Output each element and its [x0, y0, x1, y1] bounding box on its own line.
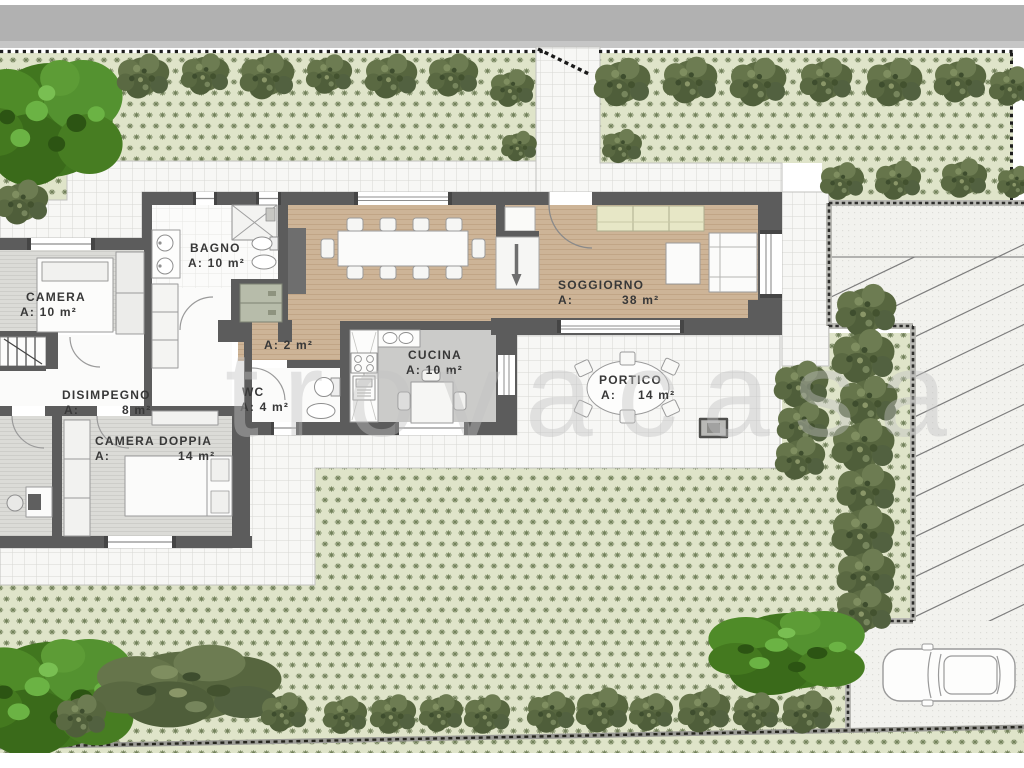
svg-text:A:: A: — [95, 449, 110, 463]
svg-text:SOGGIORNO: SOGGIORNO — [558, 278, 644, 292]
svg-text:A: 10 m²: A: 10 m² — [188, 256, 245, 270]
svg-text:8 m²: 8 m² — [122, 403, 151, 417]
svg-text:DISIMPEGNO: DISIMPEGNO — [62, 388, 151, 402]
svg-text:14 m²: 14 m² — [178, 449, 215, 463]
svg-text:38 m²: 38 m² — [622, 293, 659, 307]
svg-text:BAGNO: BAGNO — [190, 241, 241, 255]
svg-text:A: 10 m²: A: 10 m² — [20, 305, 77, 319]
svg-text:CAMERA DOPPIA: CAMERA DOPPIA — [95, 434, 212, 448]
svg-text:CAMERA: CAMERA — [26, 290, 86, 304]
svg-text:A:: A: — [64, 403, 79, 417]
svg-text:A:: A: — [558, 293, 573, 307]
svg-text:A:: A: — [601, 388, 616, 402]
